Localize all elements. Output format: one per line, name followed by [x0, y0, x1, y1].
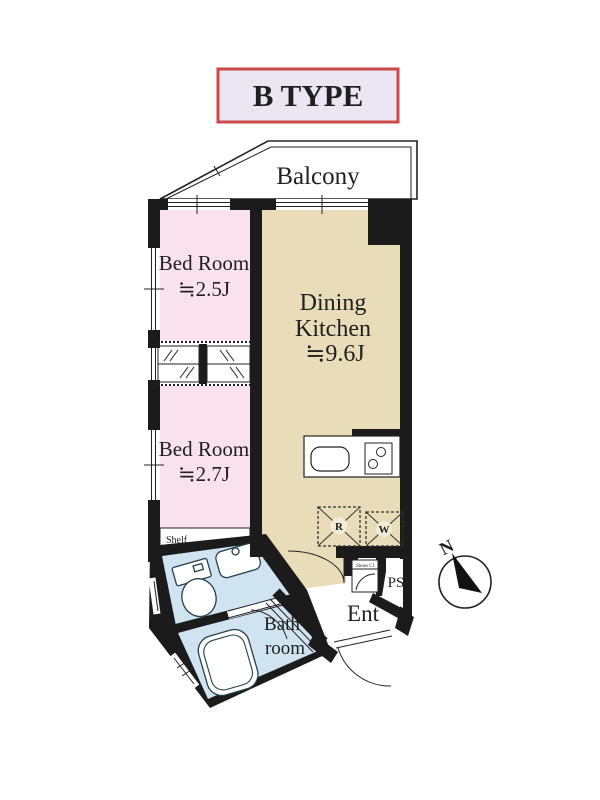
entry-door-arc — [338, 648, 391, 686]
dining-label-line1: Dining — [300, 290, 367, 316]
balcony-label: Balcony — [276, 163, 360, 190]
shoe-cabinet-label: Shoes Cl — [356, 564, 375, 569]
compass: N — [436, 535, 491, 608]
floorplan-svg: B TYPE Balcony Shelf — [0, 0, 600, 800]
entrance-label: Ent — [347, 601, 380, 626]
compass-north-label: N — [436, 535, 457, 559]
entrance-door — [334, 630, 392, 686]
bedroom2-label: Bed Room — [159, 437, 249, 461]
kitchen-counter — [304, 429, 412, 477]
shoe-cabinet: Shoes Cl — [352, 560, 378, 592]
bedroom1-floor — [160, 210, 250, 341]
entry-threshold-line1 — [334, 630, 390, 642]
bedroom1-label: Bed Room — [159, 251, 249, 275]
page-title: B TYPE — [253, 78, 364, 113]
bedroom1-size: ≒2.5J — [178, 277, 230, 301]
washer-label: W — [379, 524, 390, 536]
bath-label-line2: room — [265, 638, 305, 659]
dining-label-line2: Kitchen — [295, 316, 371, 342]
refrigerator-label: R — [335, 521, 344, 533]
bedroom2-size: ≒2.7J — [178, 462, 230, 486]
balcony: Balcony — [160, 141, 417, 199]
dining-size: ≒9.6J — [305, 341, 364, 367]
bath-label-line1: Bath — [264, 614, 300, 635]
ps-label: PS — [388, 575, 405, 591]
title-box: B TYPE — [218, 69, 398, 122]
entry-threshold-line2 — [336, 636, 392, 648]
floorplan-page: B TYPE Balcony Shelf — [0, 0, 600, 800]
